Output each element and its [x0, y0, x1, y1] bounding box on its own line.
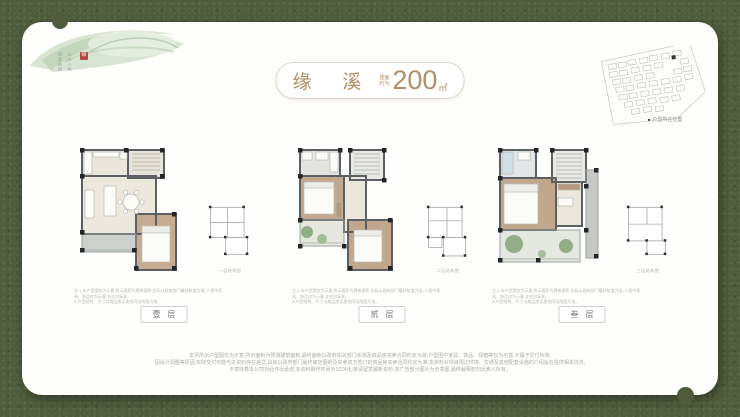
- floorplan-level2-image: [292, 144, 406, 282]
- floor-group-1: 一层结构图 注:1.本户型图仅为示意,所示面积为建筑面积,实际以政府部门最终核准…: [66, 140, 262, 328]
- floor-2-caption: 贰层: [359, 306, 406, 323]
- floor-group-3: 三层结构图 注:1.本户型图仅为示意,所示面积为建筑面积,实际以政府部门最终核准…: [484, 140, 680, 328]
- corner-notch-top-left: [52, 13, 68, 29]
- area-note: 建面 约为: [379, 75, 389, 87]
- floorplan-level1-image: [74, 144, 188, 282]
- brand-text-column-2: 山水入画: [67, 52, 72, 102]
- brand-text-column-1: 缘溪而居: [58, 52, 63, 102]
- plan-3-note-line2: 3.户型结构、尺寸以商品房买卖合同及附图为准。: [492, 299, 642, 305]
- mini-plan-3-caption: 三层结构图: [618, 268, 678, 274]
- siteplan-legend: ■ 户型所在位置: [648, 116, 682, 123]
- legal-disclaimer: 本页所示户型图仅为示意,所示面积为预测建筑面积,最终面积以政府相关部门实测及商品…: [59, 353, 681, 374]
- disclaimer-line1: 本页所示户型图仅为示意,所示面积为预测建筑面积,最终面积以政府相关部门实测及商品…: [59, 353, 681, 360]
- plan-1-note-line2: 3.户型结构、尺寸以商品房买卖合同及附图为准。: [74, 299, 224, 305]
- plan-2-note-line1: 注:1.本户型图仅为示意,所示面积为建筑面积,实际以政府部门最终核准为准; 2.…: [292, 288, 442, 299]
- legend-marker-icon: ■: [648, 118, 650, 122]
- area-value: 200: [392, 67, 437, 94]
- poster-background: 缘溪而居 山水入画 缘 缘 溪 建面 约为 200 ㎡: [0, 0, 740, 417]
- corner-notch-bottom-right: [677, 387, 694, 404]
- plan-1-notes: 注:1.本户型图仅为示意,所示面积为建筑面积,实际以政府部门最终核准为准; 2.…: [74, 288, 224, 305]
- plan-1-note-line1: 注:1.本户型图仅为示意,所示面积为建筑面积,实际以政府部门最终核准为准; 2.…: [74, 288, 224, 299]
- floor-group-2: 二层结构图 注:1.本户型图仅为示意,所示面积为建筑面积,实际以政府部门最终核准…: [284, 140, 480, 328]
- floorplan-level3-image: [492, 144, 606, 282]
- mini-plan-2-wrap: 二层结构图: [418, 204, 478, 274]
- brush-stroke-art-icon: [24, 22, 192, 88]
- floorplan-card: 缘溪而居 山水入画 缘 缘 溪 建面 约为 200 ㎡: [22, 22, 718, 395]
- disclaimer-line3: 不意味着本公司对此作出承诺;本资料制作时间为2024年,敬请留意最新资料;本广告…: [59, 367, 681, 374]
- plan-2-note-line2: 3.户型结构、尺寸以商品房买卖合同及附图为准。: [292, 299, 442, 305]
- area-unit: ㎡: [438, 81, 447, 94]
- plan-3-note-line1: 注:1.本户型图仅为示意,所示面积为建筑面积,实际以政府部门最终核准为准; 2.…: [492, 288, 642, 299]
- unit-title-pill: 缘 溪 建面 约为 200 ㎡: [276, 62, 465, 99]
- legend-text: 户型所在位置: [652, 116, 682, 123]
- mini-plan-level3-image: [618, 204, 676, 266]
- mini-plan-3-wrap: 三层结构图: [618, 204, 678, 274]
- mini-plan-level1-image: [200, 204, 258, 266]
- plan-2-notes: 注:1.本户型图仅为示意,所示面积为建筑面积,实际以政府部门最终核准为准; 2.…: [292, 288, 442, 305]
- area-note-line2: 约为: [379, 81, 389, 87]
- brand-vertical-text: 缘溪而居 山水入画 缘: [58, 52, 80, 104]
- mini-plan-level2-image: [418, 204, 476, 266]
- floor-3-caption: 叁层: [559, 306, 606, 323]
- red-seal-icon: 缘: [80, 52, 88, 60]
- mini-plan-1-wrap: 一层结构图: [200, 204, 260, 274]
- mini-plan-2-caption: 二层结构图: [418, 268, 478, 274]
- mini-plan-1-caption: 一层结构图: [200, 268, 260, 274]
- floor-1-caption: 壹层: [141, 306, 188, 323]
- plan-3-notes: 注:1.本户型图仅为示意,所示面积为建筑面积,实际以政府部门最终核准为准; 2.…: [492, 288, 642, 305]
- unit-name: 缘 溪: [293, 67, 375, 94]
- disclaimer-line2: 因设计调整等原因,实际交付可能与本资料存在差异,具体以政府部门最终审定图纸及买卖…: [59, 360, 681, 367]
